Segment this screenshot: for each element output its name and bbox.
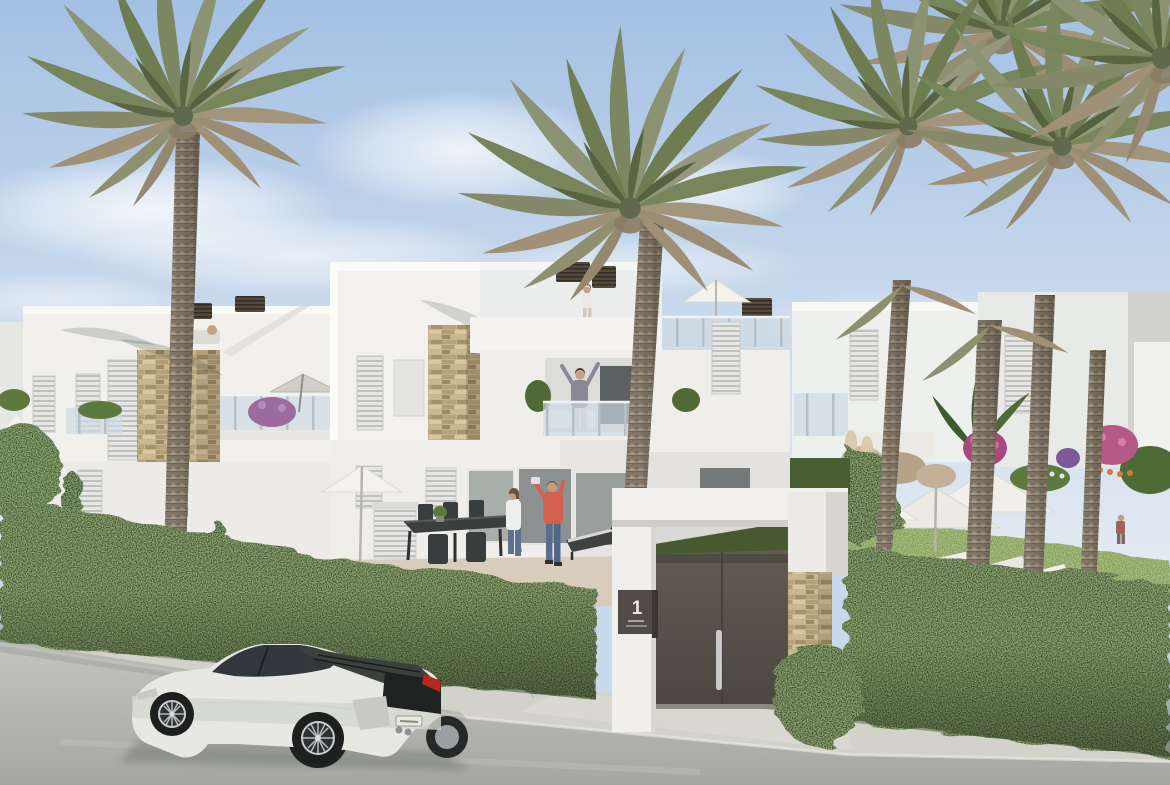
car-wheel-rear [292, 712, 344, 764]
plant-pot [672, 388, 700, 412]
window-shutter [850, 330, 878, 400]
gate-number: 1 [632, 598, 643, 619]
window [394, 360, 424, 416]
car-wheel-front [150, 692, 194, 736]
door-handle [716, 630, 722, 690]
balcony-balustrade [794, 392, 848, 436]
hedge-tuft [774, 642, 862, 746]
window-shutter [357, 356, 383, 430]
phone [531, 477, 540, 484]
purple-shrub [248, 397, 296, 427]
window-shutter [33, 376, 55, 432]
window-shutter [712, 322, 740, 394]
ac-louver-box [372, 502, 418, 558]
scene-render: 1 [0, 0, 1170, 785]
gate-number-plaque: 1 [618, 590, 658, 638]
render-canvas: 1 [0, 0, 1170, 785]
